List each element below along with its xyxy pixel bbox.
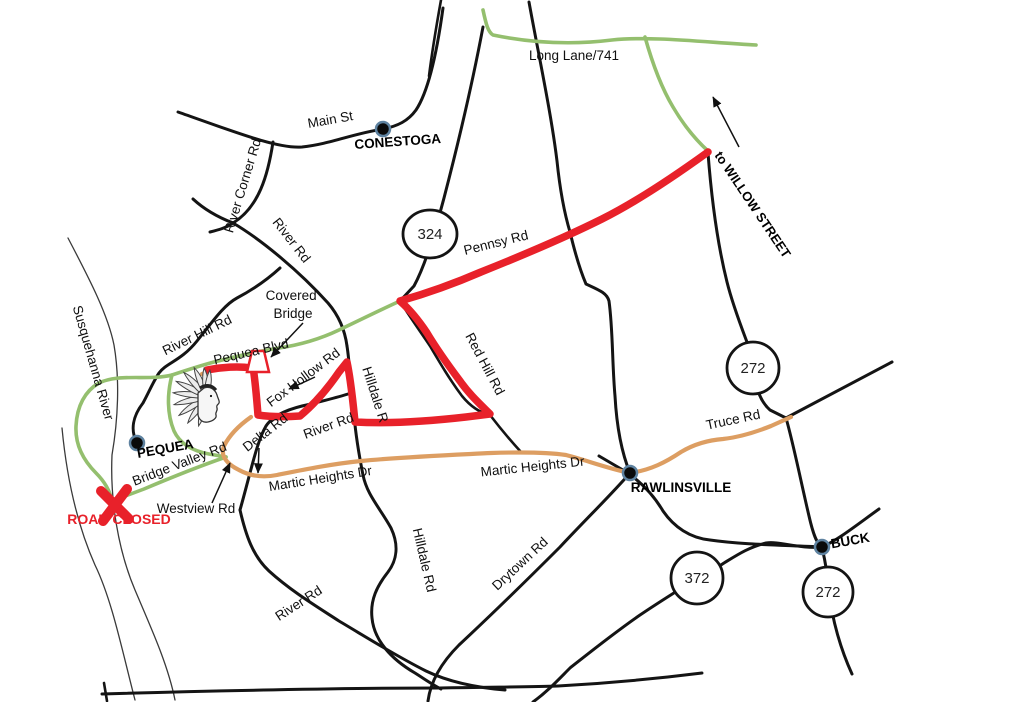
town-label-rawlinsville: RAWLINSVILLE [631,480,732,495]
label-covered-bridge: Covered Bridge [266,288,321,321]
route-shield-272-north: 272 [727,342,779,394]
label-river-rd-south: River Rd [272,583,324,624]
road-bottom-stub [104,683,107,701]
hand-drawn-road-map: 324 272 372 272 CONESTOGA PEQUEA RAWLINS… [0,0,1024,702]
delta-rd-arrow-icon [258,448,259,473]
westview-rd-arrow-icon [212,463,230,503]
label-hilldale-r: Hilldale R [359,365,391,425]
label-main-st: Main St [306,108,354,131]
label-river-rd-mid: River Rd [301,410,355,442]
route-long-lane-741 [483,10,756,45]
to-willow-arrow-icon [713,97,739,147]
label-martic-heights-east: Martic Heights Dr [480,454,586,480]
route-shield-272-south: 272 [803,567,853,617]
susquehanna-river-line-west [62,428,135,700]
label-to-willow-street: to WILLOW STREET [712,149,794,261]
svg-text:272: 272 [740,360,765,377]
label-river-corner-rd: River Corner Rd [221,137,264,235]
town-label-buck: BUCK [830,530,871,552]
road-ne-diagonal [786,362,892,418]
route-long-lane-branch [645,37,708,151]
road-bottom [102,673,702,694]
label-truce-rd: Truce Rd [705,407,762,433]
town-dot-rawlinsville [623,466,637,480]
road-hilldale [347,346,441,689]
town-dot-buck [815,540,829,554]
label-road-closed: ROAD CLOSED [67,511,170,527]
road-to-324 [400,27,483,301]
indian-head-illustration [173,367,219,427]
svg-text:272: 272 [815,584,840,601]
label-long-lane-741: Long Lane/741 [529,48,619,63]
road-mid-vertical [529,2,630,473]
route-shield-324: 324 [403,210,457,258]
route-shield-372: 372 [671,552,723,604]
town-label-conestoga: CONESTOGA [354,131,442,152]
label-river-rd-upper: River Rd [269,215,313,266]
svg-text:324: 324 [417,226,442,243]
road-drytown [428,473,630,701]
label-hilldale-rd-south: Hilldale Rd [410,526,439,593]
label-susquehanna-river: Susquehanna River [70,304,117,423]
svg-text:372: 372 [684,570,709,587]
